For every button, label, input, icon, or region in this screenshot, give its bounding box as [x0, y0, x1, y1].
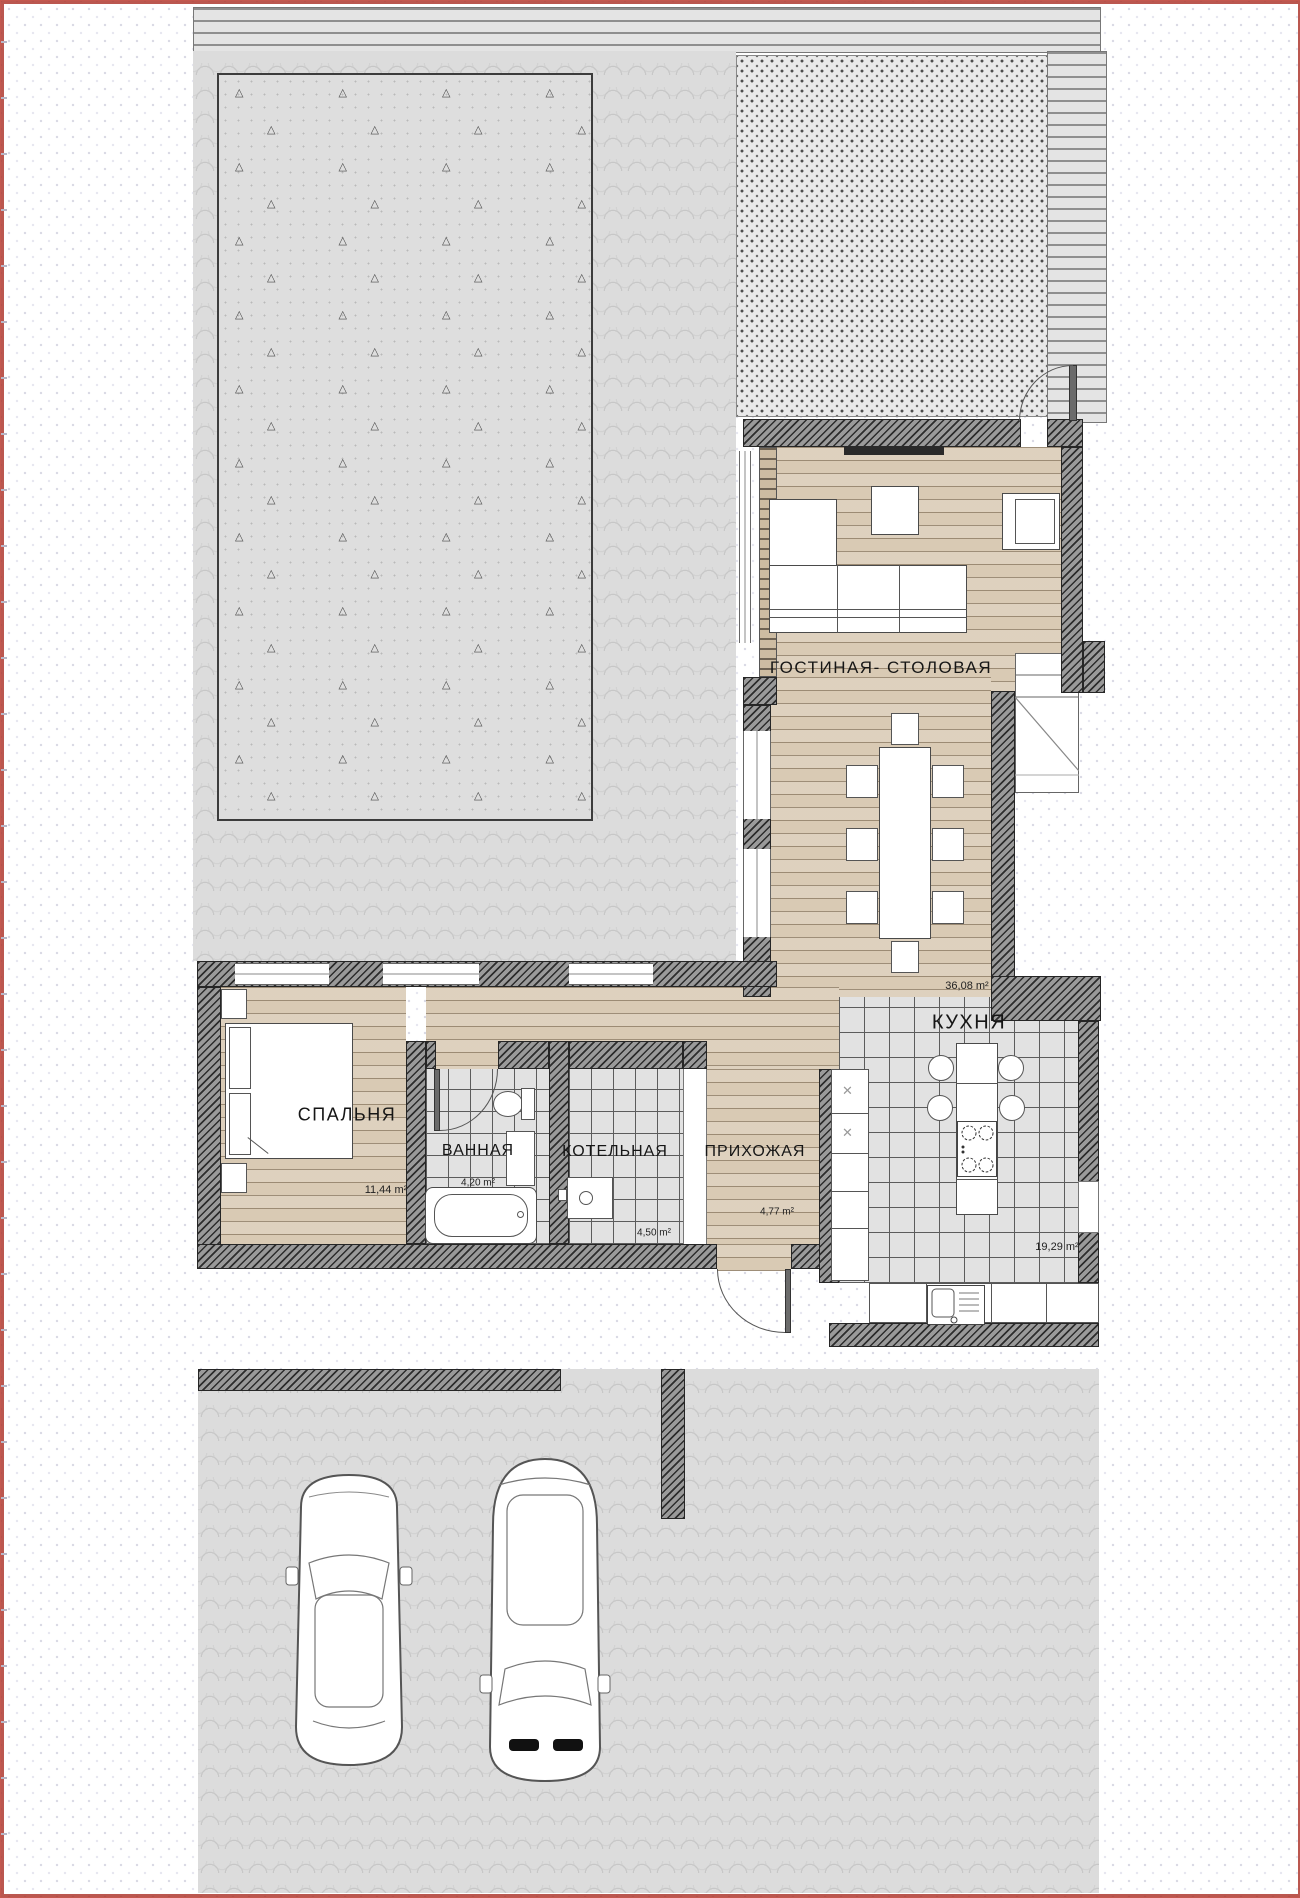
wall-living-east — [1061, 447, 1083, 693]
dining-chair — [846, 765, 878, 798]
room-area-living: 36,08 m² — [945, 980, 988, 992]
entry-door-swing — [717, 1269, 785, 1333]
wall-steps-side — [1083, 641, 1105, 693]
sofa-front-edge — [769, 617, 967, 618]
toilet-tank — [521, 1088, 535, 1120]
counter-divider — [831, 1113, 869, 1114]
bar-stool — [998, 1055, 1024, 1081]
counter-divider — [1046, 1283, 1047, 1323]
tv-unit — [844, 446, 944, 455]
appliance-x-mark: ✕ — [842, 1125, 853, 1141]
room-area-kitchen: 19,29 m² — [1035, 1241, 1078, 1253]
lawn-triangle-row: △ △ △ △ △ △ △ — [219, 297, 591, 334]
wall-bath-top-stub — [426, 1041, 436, 1069]
room-label-kitchen: КУХНЯ — [932, 1012, 1006, 1035]
kitchen-sink — [927, 1285, 985, 1325]
terrace-gravel — [736, 55, 1049, 417]
room-area-bathroom: 4,20 m² — [461, 1178, 495, 1189]
wall-bath-top — [498, 1041, 549, 1069]
sofa-front-edge — [769, 609, 967, 610]
coffee-table — [871, 486, 919, 535]
dining-chair — [891, 941, 919, 973]
lawn-triangle-row: △ △ △ △ △ △ △ — [219, 778, 591, 815]
room-label-hallway: ПРИХОЖАЯ — [705, 1143, 806, 1161]
dining-chair — [846, 891, 878, 924]
door-threshold — [717, 1244, 791, 1271]
lawn-triangle-row: △ △ △ △ △ △ △ — [219, 112, 591, 149]
boiler-pipe-stub — [558, 1189, 567, 1201]
lawn-triangle-row: △ △ △ △ △ △ △ — [219, 223, 591, 260]
lawn-triangle-row: △ △ △ △ △ △ △ — [219, 482, 591, 519]
lawn-triangle-row: △ △ △ △ △ △ △ — [219, 445, 591, 482]
bar-stool — [927, 1095, 953, 1121]
bar-stool — [999, 1095, 1025, 1121]
lawn-triangle-row: △ △ △ △ △ △ △ — [219, 260, 591, 297]
window-living-west — [739, 451, 751, 643]
window-bedroom-2 — [383, 963, 479, 985]
nightstand — [221, 1163, 247, 1193]
bathtub-basin — [434, 1194, 528, 1237]
left-edge-ticks — [1, 41, 7, 1861]
lawn-triangle-row: △ △ △ △ △ △ △ — [219, 704, 591, 741]
island-divider — [956, 1179, 998, 1180]
car-top-view — [285, 1467, 413, 1773]
lawn-triangle-row: △ △ △ △ △ △ △ — [219, 334, 591, 371]
wood-deck-top — [193, 7, 1101, 53]
counter-divider — [831, 1191, 869, 1192]
lawn-triangle-row: △ △ △ △ △ △ △ — [219, 630, 591, 667]
wall-carport-top — [198, 1369, 561, 1391]
window-dining-west-2 — [743, 849, 771, 937]
wall-carport-mid — [661, 1369, 685, 1519]
lawn-triangle-row: △ △ △ △ △ △ △ — [219, 186, 591, 223]
wall-dining-east — [991, 691, 1015, 997]
car-top-view — [479, 1447, 611, 1789]
bar-stool — [928, 1055, 954, 1081]
lawn-area: △ △ △ △ △ △ △ △ △ △ △ △ △ △ △ △ △ △ △ △ … — [217, 73, 593, 821]
lawn-triangle-row: △ △ △ △ △ △ △ — [219, 408, 591, 445]
wall-living-top-right — [1047, 419, 1083, 447]
entry-door-leaf — [785, 1269, 791, 1333]
dining-chair — [932, 891, 964, 924]
appliance-x-mark: ✕ — [842, 1083, 853, 1099]
island-divider — [956, 1083, 998, 1084]
wall-kitchen-top — [991, 976, 1101, 1021]
lawn-triangle-row: △ △ △ △ △ △ △ — [219, 556, 591, 593]
wall-bedroom-bath — [406, 1041, 426, 1244]
lawn-triangle-row: △ △ △ △ △ △ △ — [219, 75, 591, 112]
wall-living-top-left — [743, 419, 1021, 447]
lawn-triangle-row: △ △ △ △ △ △ △ — [219, 149, 591, 186]
bathtub-drain — [517, 1211, 524, 1218]
dining-table — [879, 747, 931, 939]
pillow — [229, 1093, 251, 1155]
cooktop — [957, 1121, 997, 1177]
dining-chair — [846, 828, 878, 861]
pillow — [229, 1027, 251, 1089]
sofa-cushion-divider — [837, 565, 838, 633]
floor-plan-sheet: △ △ △ △ △ △ △ △ △ △ △ △ △ △ △ △ △ △ △ △ … — [0, 0, 1300, 1898]
dining-chair — [932, 765, 964, 798]
dining-chair — [932, 828, 964, 861]
nightstand — [221, 989, 247, 1019]
lawn-triangle-row: △ △ △ △ △ △ △ — [219, 741, 591, 778]
window-bedroom-1 — [235, 963, 329, 985]
room-area-hallway: 4,77 m² — [760, 1207, 794, 1218]
lawn-triangle-row: △ △ △ △ △ △ △ — [219, 519, 591, 556]
wall-boiler-hall-cavity — [683, 1069, 707, 1244]
room-label-living: ГОСТИНАЯ- СТОЛОВАЯ — [770, 658, 992, 678]
lawn-triangle-row: △ △ △ △ △ △ △ — [219, 593, 591, 630]
window-boiler — [569, 963, 653, 985]
lawn-triangle-row: △ △ △ △ △ △ △ — [219, 371, 591, 408]
room-area-bedroom: 11,44 m² — [365, 1184, 408, 1196]
wall-west-corner — [743, 677, 777, 705]
kitchen-counter-left — [831, 1069, 869, 1281]
counter-divider — [831, 1153, 869, 1154]
room-label-bedroom: СПАЛЬНЯ — [298, 1105, 396, 1126]
room-label-bathroom: ВАННАЯ — [442, 1142, 514, 1160]
dining-chair — [891, 713, 919, 745]
wall-kitchen-right — [1078, 1021, 1099, 1283]
counter-divider — [831, 1228, 869, 1229]
wall-gap-top — [683, 1041, 707, 1069]
wall-kitchen-bottom — [829, 1323, 1099, 1347]
wall-wing-bottom — [197, 1244, 717, 1269]
sofa-cushion-divider — [899, 565, 900, 633]
wall-wing-west — [197, 987, 221, 1269]
boiler-dial — [579, 1191, 593, 1205]
counter-divider — [991, 1283, 992, 1323]
sofa-seat — [769, 565, 967, 633]
toilet-bowl — [493, 1091, 523, 1117]
armchair-seat — [1015, 499, 1055, 544]
room-area-boiler: 4,50 m² — [637, 1228, 671, 1239]
window-kitchen-counter-niche — [1078, 1181, 1099, 1233]
room-label-boiler: КОТЕЛЬНАЯ — [562, 1143, 668, 1161]
wall-boiler-top — [569, 1041, 683, 1069]
window-dining-west-1 — [743, 731, 771, 819]
lawn-triangle-row: △ △ △ △ △ △ △ — [219, 667, 591, 704]
